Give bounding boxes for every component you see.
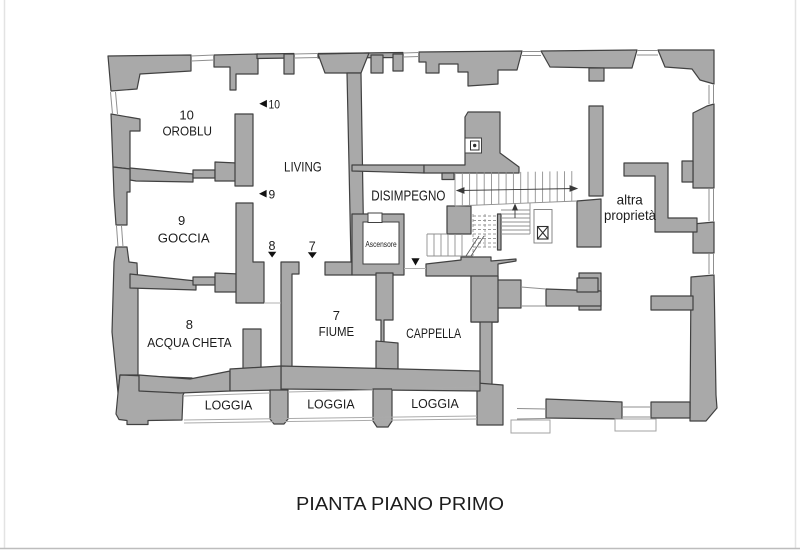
svg-text:ACQUA CHETA: ACQUA CHETA bbox=[147, 335, 232, 350]
svg-text:GOCCIA: GOCCIA bbox=[158, 231, 210, 246]
svg-text:10: 10 bbox=[269, 98, 281, 112]
svg-text:10: 10 bbox=[179, 108, 194, 123]
svg-text:OROBLU: OROBLU bbox=[162, 123, 212, 138]
svg-text:proprietà: proprietà bbox=[604, 207, 656, 223]
svg-text:LOGGIA: LOGGIA bbox=[205, 397, 253, 412]
svg-text:Ascensore: Ascensore bbox=[365, 240, 397, 249]
svg-text:altra: altra bbox=[617, 192, 643, 208]
svg-text:PIANTA PIANO PRIMO: PIANTA PIANO PRIMO bbox=[296, 494, 504, 514]
svg-text:7: 7 bbox=[333, 308, 340, 323]
svg-text:CAPPELLA: CAPPELLA bbox=[406, 326, 461, 341]
svg-text:8: 8 bbox=[269, 239, 276, 253]
svg-text:9: 9 bbox=[269, 187, 276, 201]
svg-text:8: 8 bbox=[186, 317, 193, 332]
svg-text:LIVING: LIVING bbox=[284, 159, 322, 175]
svg-text:LOGGIA: LOGGIA bbox=[307, 397, 355, 412]
svg-text:7: 7 bbox=[309, 240, 316, 254]
svg-text:DISIMPEGNO: DISIMPEGNO bbox=[371, 189, 445, 205]
svg-text:LOGGIA: LOGGIA bbox=[411, 396, 459, 411]
svg-text:FIUME: FIUME bbox=[319, 324, 355, 339]
svg-text:9: 9 bbox=[178, 213, 185, 228]
